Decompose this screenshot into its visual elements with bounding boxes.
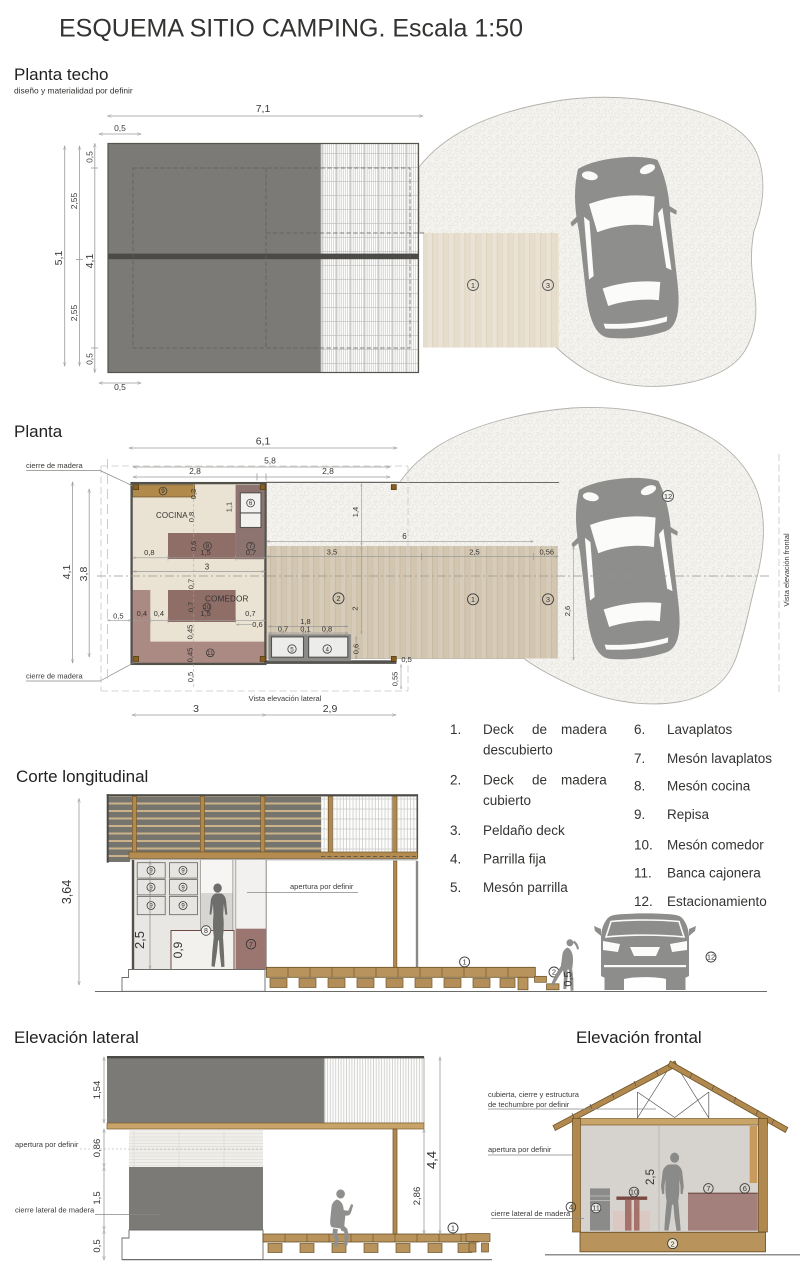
svg-text:3: 3: [546, 595, 550, 604]
svg-text:Banca cajonera: Banca cajonera: [667, 866, 761, 881]
svg-text:Peldaño deck: Peldaño deck: [483, 823, 565, 838]
svg-text:Vista elevación frontal: Vista elevación frontal: [782, 533, 791, 607]
svg-text:1,54: 1,54: [92, 1081, 103, 1100]
svg-text:0,6: 0,6: [252, 620, 262, 629]
svg-text:6: 6: [249, 500, 253, 507]
svg-text:0,4: 0,4: [154, 609, 164, 618]
svg-text:apertura por definir: apertura por definir: [290, 882, 354, 891]
svg-text:0,1: 0,1: [300, 625, 310, 634]
svg-text:descubierto: descubierto: [483, 743, 553, 758]
svg-text:1,4: 1,4: [351, 507, 360, 517]
svg-text:2,5: 2,5: [645, 1169, 657, 1185]
svg-text:apertura por definir: apertura por definir: [488, 1145, 552, 1154]
svg-text:4: 4: [569, 1203, 573, 1212]
svg-text:COMEDOR: COMEDOR: [205, 595, 248, 604]
svg-text:1,5: 1,5: [200, 609, 210, 618]
svg-text:0,7: 0,7: [278, 625, 288, 634]
svg-text:diseño y materialidad por defi: diseño y materialidad por definir: [14, 86, 133, 96]
svg-text:6,1: 6,1: [256, 436, 271, 448]
svg-text:ESQUEMA SITIO CAMPING. Escala: ESQUEMA SITIO CAMPING. Escala 1:50: [59, 15, 523, 43]
svg-text:0,8: 0,8: [144, 548, 154, 557]
svg-text:Lavaplatos: Lavaplatos: [667, 722, 733, 737]
svg-text:3: 3: [193, 703, 199, 715]
svg-text:11: 11: [207, 651, 214, 657]
svg-text:Mesón cocina: Mesón cocina: [667, 779, 751, 794]
svg-text:2,5: 2,5: [469, 548, 479, 557]
svg-text:0,7: 0,7: [187, 579, 196, 589]
svg-text:0,8: 0,8: [322, 625, 332, 634]
svg-text:0,55: 0,55: [390, 672, 399, 687]
svg-text:0,4: 0,4: [137, 609, 147, 618]
svg-text:2.: 2.: [450, 773, 461, 788]
svg-text:0,6: 0,6: [352, 644, 361, 654]
svg-text:12.: 12.: [634, 894, 653, 909]
svg-text:10.: 10.: [634, 838, 653, 853]
svg-text:0,5: 0,5: [114, 382, 126, 392]
svg-text:0,5: 0,5: [186, 672, 195, 682]
svg-text:0,5: 0,5: [85, 151, 95, 163]
svg-text:Mesón parrilla: Mesón parrilla: [483, 880, 568, 895]
svg-text:3,8: 3,8: [78, 567, 90, 582]
svg-text:Planta: Planta: [14, 422, 63, 441]
svg-text:Planta techo: Planta techo: [14, 65, 109, 84]
svg-text:1.: 1.: [450, 722, 461, 737]
svg-text:5: 5: [290, 646, 294, 653]
svg-text:0,5: 0,5: [563, 971, 575, 986]
svg-text:2,8: 2,8: [322, 466, 334, 476]
svg-text:12: 12: [664, 492, 672, 501]
svg-text:2: 2: [336, 594, 340, 603]
svg-text:cierre lateral de madera: cierre lateral de madera: [491, 1209, 571, 1218]
svg-text:0,5: 0,5: [401, 655, 411, 664]
svg-text:madera: madera: [561, 722, 607, 737]
svg-text:4,1: 4,1: [84, 254, 96, 269]
svg-text:9.: 9.: [634, 807, 645, 822]
svg-text:Parrilla fija: Parrilla fija: [483, 852, 547, 867]
svg-text:1: 1: [451, 1224, 455, 1233]
svg-text:0,45: 0,45: [186, 625, 195, 640]
svg-text:Elevación frontal: Elevación frontal: [576, 1028, 702, 1047]
svg-text:3,5: 3,5: [327, 548, 337, 557]
svg-text:9: 9: [161, 488, 165, 495]
svg-text:2,5: 2,5: [132, 931, 147, 949]
svg-text:Mesón lavaplatos: Mesón lavaplatos: [667, 751, 772, 766]
svg-text:5,8: 5,8: [264, 456, 276, 466]
svg-text:8: 8: [204, 928, 208, 935]
svg-text:Mesón comedor: Mesón comedor: [667, 838, 764, 853]
svg-text:10: 10: [630, 1188, 638, 1197]
svg-text:1: 1: [471, 281, 475, 290]
svg-text:2,9: 2,9: [323, 703, 338, 715]
svg-text:0,5: 0,5: [114, 123, 126, 133]
svg-text:0,5: 0,5: [92, 1239, 103, 1252]
svg-text:de: de: [532, 722, 547, 737]
svg-text:cierre de madera: cierre de madera: [26, 672, 84, 681]
svg-text:11.: 11.: [634, 866, 652, 881]
svg-text:Elevación lateral: Elevación lateral: [14, 1028, 139, 1047]
svg-text:4: 4: [325, 646, 329, 653]
svg-text:cierre lateral de madera: cierre lateral de madera: [15, 1206, 95, 1215]
svg-text:11: 11: [592, 1204, 600, 1213]
svg-text:madera: madera: [561, 773, 607, 788]
svg-text:de: de: [532, 773, 547, 788]
svg-text:7: 7: [249, 942, 253, 949]
svg-text:0,86: 0,86: [92, 1139, 103, 1158]
svg-text:0,5: 0,5: [113, 612, 123, 621]
svg-text:3.: 3.: [450, 823, 461, 838]
svg-text:0,9: 0,9: [171, 941, 185, 958]
svg-text:Vista elevación lateral: Vista elevación lateral: [249, 694, 322, 703]
svg-text:0,5: 0,5: [85, 353, 95, 365]
svg-text:3,64: 3,64: [60, 880, 74, 904]
svg-text:6: 6: [402, 532, 407, 541]
svg-text:7,1: 7,1: [256, 103, 271, 115]
svg-text:4,1: 4,1: [61, 565, 73, 580]
svg-text:8.: 8.: [634, 779, 645, 794]
svg-text:de techumbre por definir: de techumbre por definir: [488, 1100, 570, 1109]
svg-text:apertura por definir: apertura por definir: [15, 1140, 79, 1149]
svg-text:Deck: Deck: [483, 773, 514, 788]
svg-text:6.: 6.: [634, 722, 645, 737]
svg-text:2,86: 2,86: [412, 1187, 423, 1206]
svg-text:0,3: 0,3: [189, 489, 198, 499]
svg-text:COCINA: COCINA: [156, 511, 188, 520]
svg-text:1,5: 1,5: [200, 548, 210, 557]
svg-text:4.: 4.: [450, 852, 461, 867]
svg-text:7.: 7.: [634, 751, 645, 766]
svg-text:0,6: 0,6: [189, 541, 198, 551]
svg-text:Corte longitudinal: Corte longitudinal: [16, 767, 148, 786]
svg-text:cierre de madera: cierre de madera: [26, 461, 84, 470]
svg-text:Deck: Deck: [483, 722, 514, 737]
svg-text:2,8: 2,8: [189, 466, 201, 476]
svg-text:cubierto: cubierto: [483, 793, 531, 808]
svg-text:0,7: 0,7: [246, 548, 256, 557]
svg-text:0,56: 0,56: [539, 548, 554, 557]
svg-text:2: 2: [351, 606, 360, 610]
svg-text:7: 7: [706, 1184, 710, 1193]
svg-text:3: 3: [546, 281, 550, 290]
svg-text:1,1: 1,1: [225, 502, 234, 512]
svg-text:cubierta, cierre y estructura: cubierta, cierre y estructura: [488, 1090, 580, 1099]
svg-text:2,55: 2,55: [69, 304, 79, 321]
svg-text:Estacionamiento: Estacionamiento: [667, 894, 767, 909]
svg-text:4,4: 4,4: [424, 1151, 439, 1169]
svg-text:3: 3: [205, 563, 210, 572]
svg-text:0,45: 0,45: [186, 648, 195, 663]
svg-text:Repisa: Repisa: [667, 807, 710, 822]
svg-text:6: 6: [743, 1184, 747, 1193]
svg-text:0,7: 0,7: [186, 602, 195, 612]
svg-text:1,5: 1,5: [92, 1191, 103, 1204]
svg-text:0,7: 0,7: [245, 609, 255, 618]
svg-text:2,6: 2,6: [563, 606, 572, 616]
svg-text:5,1: 5,1: [53, 251, 65, 266]
svg-text:2,55: 2,55: [69, 192, 79, 209]
svg-text:2: 2: [671, 1239, 675, 1248]
svg-text:1: 1: [471, 595, 475, 604]
svg-text:12: 12: [707, 953, 715, 962]
svg-text:0,8: 0,8: [187, 512, 196, 522]
svg-text:1: 1: [463, 958, 467, 967]
svg-text:5.: 5.: [450, 880, 461, 895]
